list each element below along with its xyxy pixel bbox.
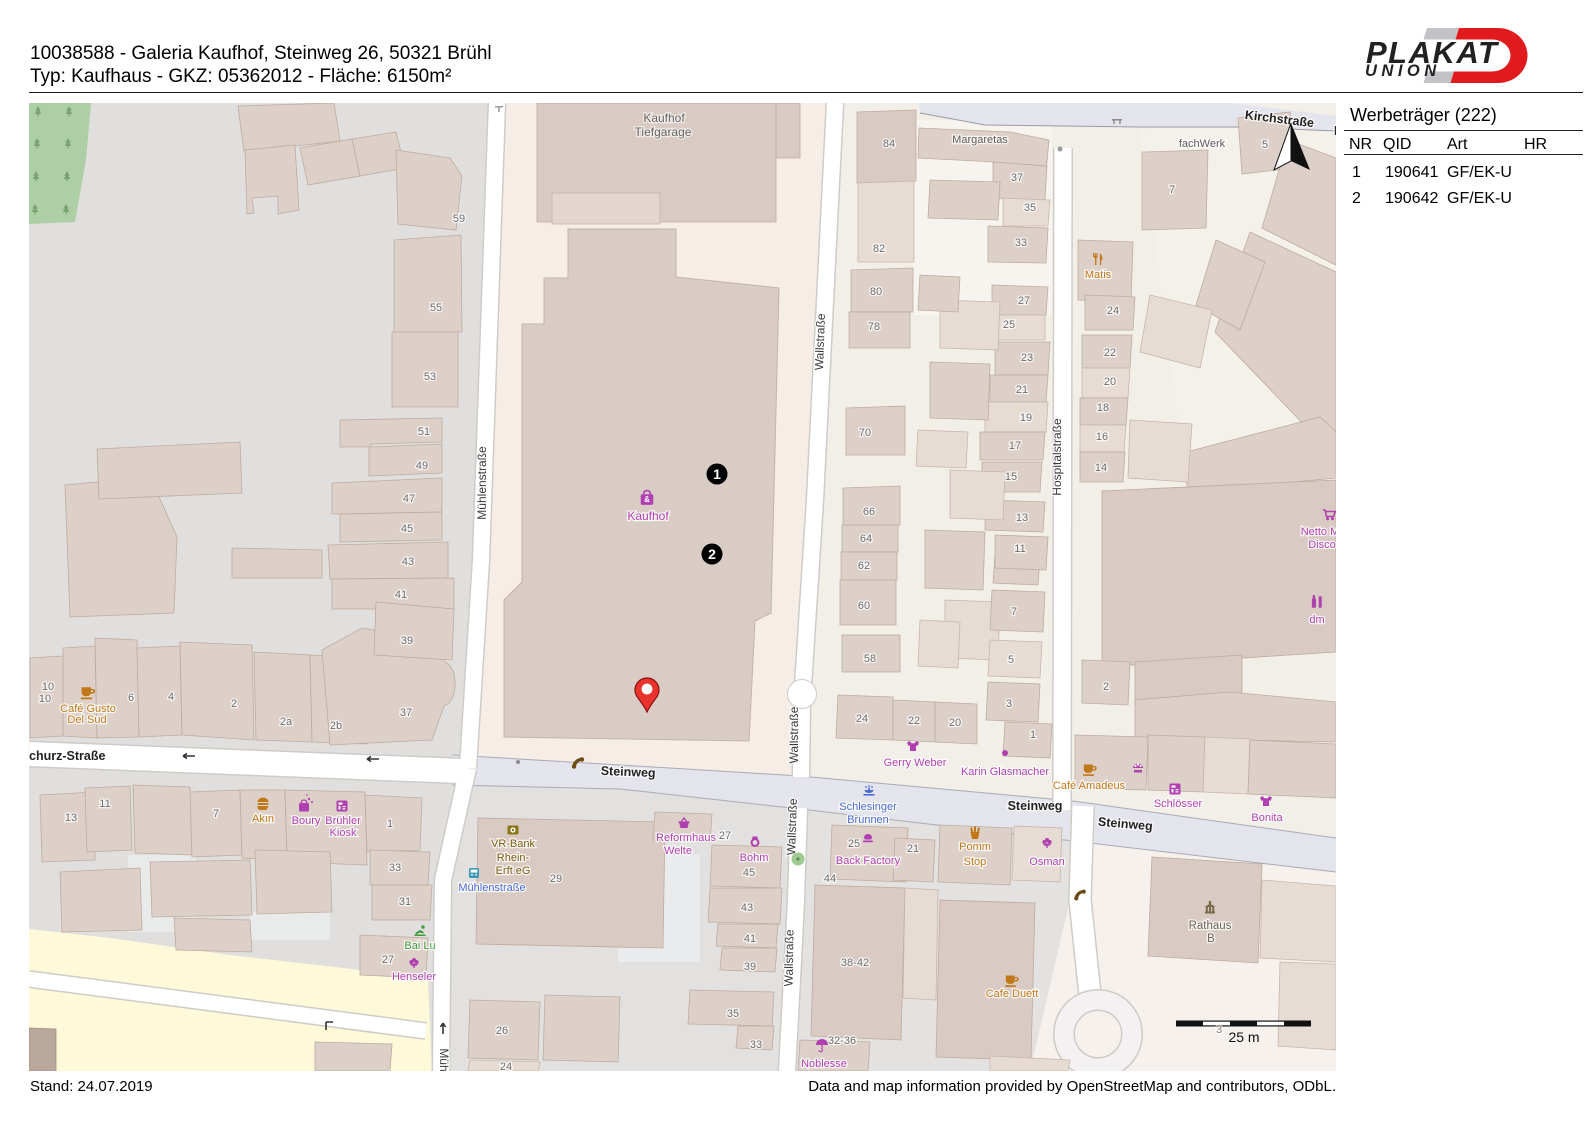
svg-text:24: 24 (500, 1061, 512, 1071)
svg-text:24: 24 (856, 713, 868, 725)
svg-text:80: 80 (870, 286, 882, 298)
svg-text:dm: dm (1309, 614, 1324, 626)
svg-text:60: 60 (858, 600, 870, 612)
svg-text:27: 27 (719, 830, 731, 842)
svg-text:Gerry Weber: Gerry Weber (884, 757, 947, 769)
svg-text:B: B (1207, 933, 1215, 945)
svg-text:3: 3 (1006, 698, 1012, 710)
svg-text:16: 16 (1096, 431, 1108, 443)
svg-text:15: 15 (1005, 471, 1017, 483)
svg-text:35: 35 (1024, 202, 1036, 214)
svg-text:&: & (644, 495, 650, 504)
svg-text:38-42: 38-42 (841, 957, 869, 969)
svg-text:Reformhaus: Reformhaus (656, 832, 716, 844)
svg-text:Brühler: Brühler (325, 815, 361, 827)
svg-text:Del Sud: Del Sud (67, 714, 106, 726)
svg-text:Café Amadeus: Café Amadeus (1053, 780, 1126, 792)
svg-text:Stop: Stop (964, 856, 987, 868)
svg-text:43: 43 (741, 902, 753, 914)
svg-text:3: 3 (1216, 1024, 1222, 1036)
svg-text:Akın: Akın (252, 813, 274, 825)
svg-text:6: 6 (128, 692, 134, 704)
svg-text:Boury: Boury (292, 815, 321, 827)
svg-text:2: 2 (231, 698, 237, 710)
svg-text:2: 2 (1103, 681, 1109, 693)
svg-text:Matis: Matis (1085, 269, 1112, 281)
svg-text:1: 1 (713, 466, 721, 482)
svg-text:2a: 2a (280, 716, 293, 728)
svg-text:10: 10 (39, 693, 51, 705)
svg-text:Cafe Duett: Cafe Duett (986, 988, 1039, 1000)
svg-text:45: 45 (401, 523, 413, 535)
svg-text:5: 5 (1008, 654, 1014, 666)
svg-text:Mühlenstraße: Mühlenstraße (458, 882, 525, 894)
svg-text:7: 7 (1011, 606, 1017, 618)
svg-text:24: 24 (1107, 305, 1119, 317)
svg-text:55: 55 (430, 302, 442, 314)
svg-text:41: 41 (395, 589, 407, 601)
svg-text:Rhein-: Rhein- (497, 852, 530, 864)
svg-text:Osman: Osman (1029, 856, 1064, 868)
svg-text:33: 33 (389, 862, 401, 874)
svg-text:70: 70 (859, 427, 871, 439)
svg-text:35: 35 (727, 1008, 739, 1020)
svg-text:Back Factory: Back Factory (836, 855, 901, 867)
svg-text:UNION: UNION (1365, 62, 1441, 80)
svg-text:11: 11 (99, 798, 110, 810)
svg-text:59: 59 (453, 213, 465, 225)
svg-text:2b: 2b (330, 720, 342, 732)
svg-text:26: 26 (496, 1025, 508, 1037)
svg-text:Bai Lu: Bai Lu (404, 940, 435, 952)
svg-text:VR-Bank: VR-Bank (491, 838, 536, 850)
svg-text:7: 7 (213, 808, 219, 820)
svg-text:11: 11 (1014, 543, 1025, 555)
svg-text:Brunnen: Brunnen (847, 814, 889, 826)
svg-text:25: 25 (848, 838, 860, 850)
svg-text:21: 21 (1016, 384, 1028, 396)
svg-text:25 m: 25 m (1228, 1029, 1259, 1045)
svg-text:Kaufhof: Kaufhof (643, 111, 685, 125)
svg-text:41: 41 (744, 933, 756, 945)
svg-text:Hospitalstraße: Hospitalstraße (1050, 418, 1064, 496)
svg-text:K: K (1334, 124, 1336, 138)
svg-text:39: 39 (401, 635, 413, 647)
svg-text:19: 19 (1020, 412, 1032, 424)
svg-text:37: 37 (400, 707, 412, 719)
svg-text:Wallstraße: Wallstraße (812, 313, 828, 371)
svg-text:82: 82 (873, 243, 885, 255)
svg-text:Tiefgarage: Tiefgarage (635, 125, 692, 139)
svg-text:Mühlenstraße: Mühlenstraße (437, 1048, 451, 1071)
svg-text:44: 44 (824, 873, 836, 885)
svg-text:Wallstraße: Wallstraße (787, 706, 801, 763)
svg-text:13: 13 (65, 812, 77, 824)
svg-text:Steinweg: Steinweg (600, 764, 655, 780)
svg-text:Schlösser: Schlösser (1154, 798, 1203, 810)
svg-text:Schlesinger: Schlesinger (839, 801, 897, 813)
svg-text:37: 37 (1011, 172, 1023, 184)
svg-text:7: 7 (1169, 184, 1175, 196)
svg-text:66: 66 (863, 506, 875, 518)
svg-text:Kiosk: Kiosk (330, 827, 357, 839)
svg-text:Welte: Welte (664, 845, 692, 857)
svg-text:25: 25 (1003, 319, 1015, 331)
svg-text:10: 10 (42, 681, 54, 693)
svg-text:47: 47 (403, 493, 415, 505)
svg-text:4: 4 (168, 691, 174, 703)
svg-text:23: 23 (1021, 352, 1033, 364)
svg-text:2: 2 (708, 546, 716, 562)
svg-text:Netto M: Netto M (1301, 526, 1336, 538)
svg-text:33: 33 (1015, 237, 1027, 249)
svg-text:Kaufhof: Kaufhof (627, 509, 669, 523)
svg-text:20: 20 (1104, 376, 1116, 388)
svg-text:22: 22 (1104, 347, 1116, 359)
svg-text:Henseler: Henseler (392, 971, 436, 983)
svg-text:32-36: 32-36 (828, 1035, 856, 1047)
svg-text:51: 51 (418, 426, 430, 438)
svg-text:Mühlenstraße: Mühlenstraße (475, 446, 489, 520)
svg-text:58: 58 (864, 653, 876, 665)
svg-text:Bonita: Bonita (1251, 812, 1283, 824)
svg-text:18: 18 (1097, 402, 1109, 414)
svg-text:29: 29 (550, 873, 562, 885)
svg-text:5: 5 (1262, 139, 1268, 151)
svg-text:64: 64 (860, 533, 872, 545)
svg-text:39: 39 (744, 961, 756, 973)
svg-text:27: 27 (1018, 295, 1030, 307)
svg-text:33: 33 (750, 1039, 762, 1051)
svg-text:20: 20 (949, 717, 961, 729)
svg-text:Wallstraße: Wallstraße (784, 798, 800, 856)
svg-text:62: 62 (858, 560, 870, 572)
svg-text:78: 78 (868, 321, 880, 333)
svg-text:53: 53 (424, 371, 436, 383)
svg-text:Steinweg: Steinweg (1008, 799, 1063, 813)
svg-text:1: 1 (387, 818, 393, 830)
svg-text:43: 43 (402, 556, 414, 568)
svg-text:Karin Glasmacher: Karin Glasmacher (961, 766, 1049, 778)
svg-text:Bohm: Bohm (740, 852, 769, 864)
svg-text:13: 13 (1016, 512, 1028, 524)
svg-text:Pomm: Pomm (959, 841, 991, 853)
svg-text:Erft eG: Erft eG (496, 865, 531, 877)
svg-text:churz-Straße: churz-Straße (29, 749, 105, 763)
svg-text:17: 17 (1009, 440, 1021, 452)
svg-text:49: 49 (416, 460, 428, 472)
svg-text:22: 22 (908, 715, 920, 727)
svg-text:Margaretas: Margaretas (952, 134, 1008, 146)
svg-text:Noblesse: Noblesse (801, 1058, 847, 1070)
svg-text:84: 84 (883, 138, 895, 150)
svg-text:Disco: Disco (1308, 539, 1336, 551)
svg-text:31: 31 (399, 896, 411, 908)
svg-text:14: 14 (1095, 462, 1107, 474)
svg-text:27: 27 (382, 954, 394, 966)
svg-text:1: 1 (1030, 729, 1036, 741)
svg-text:21: 21 (907, 843, 919, 855)
svg-text:Wallstraße: Wallstraße (782, 929, 797, 986)
svg-text:fachWerk: fachWerk (1179, 138, 1226, 150)
svg-text:Rathaus: Rathaus (1189, 920, 1232, 932)
svg-text:45: 45 (743, 867, 755, 879)
